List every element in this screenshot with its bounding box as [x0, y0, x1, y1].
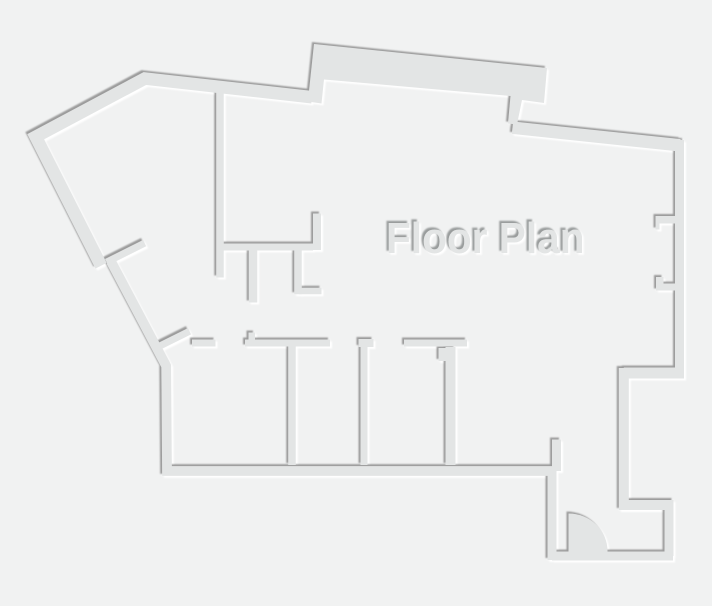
svg-text:Floor Plan: Floor Plan — [386, 215, 585, 263]
